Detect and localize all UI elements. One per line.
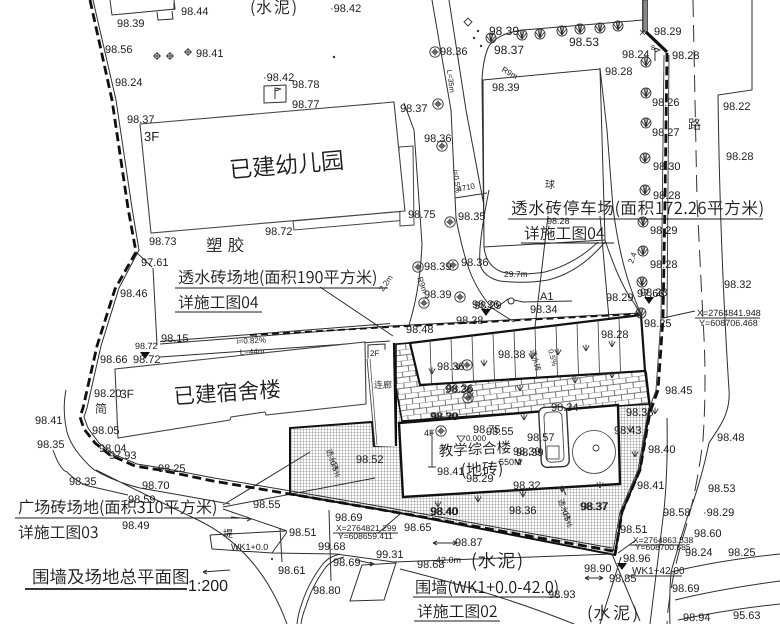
svg-text:98.87: 98.87 <box>455 537 483 549</box>
svg-text:98.39: 98.39 <box>489 24 519 38</box>
svg-text:98.55: 98.55 <box>253 499 281 511</box>
svg-text:98.35: 98.35 <box>626 407 654 419</box>
svg-text:98.75: 98.75 <box>408 209 436 221</box>
svg-text:98.52: 98.52 <box>356 454 384 466</box>
svg-text:98.72: 98.72 <box>265 226 293 238</box>
svg-text:98.25: 98.25 <box>158 463 186 475</box>
svg-text:98.48: 98.48 <box>406 324 434 336</box>
svg-text:98.39: 98.39 <box>513 446 541 458</box>
svg-text:98.36: 98.36 <box>446 383 474 395</box>
svg-text:98.20: 98.20 <box>94 388 122 400</box>
svg-text:98.28: 98.28 <box>672 50 700 62</box>
svg-text:98.36: 98.36 <box>440 46 468 58</box>
svg-text:98.30: 98.30 <box>431 411 459 423</box>
svg-text:98.28: 98.28 <box>650 259 678 271</box>
svg-text:98.53: 98.53 <box>569 35 599 49</box>
svg-text:98.24: 98.24 <box>622 49 650 61</box>
svg-text:98.72: 98.72 <box>133 354 161 366</box>
svg-text:98.36: 98.36 <box>461 257 489 269</box>
svg-text:98.39: 98.39 <box>424 261 452 273</box>
svg-text:98.36: 98.36 <box>509 505 537 517</box>
svg-text:98.32: 98.32 <box>724 279 752 291</box>
svg-text:98.38: 98.38 <box>456 315 484 327</box>
svg-text:98.93: 98.93 <box>548 589 576 601</box>
svg-text:98.34: 98.34 <box>551 402 579 414</box>
svg-text:3F: 3F <box>120 387 134 401</box>
svg-text:98.58: 98.58 <box>663 507 691 519</box>
svg-text:98.66: 98.66 <box>100 354 128 366</box>
svg-text:98.53: 98.53 <box>708 483 736 495</box>
svg-text:98.41: 98.41 <box>637 480 665 492</box>
svg-text:98.37: 98.37 <box>127 114 155 126</box>
svg-text:·98.42: ·98.42 <box>263 72 294 84</box>
svg-text:98.37: 98.37 <box>400 103 428 115</box>
svg-text:98.44: 98.44 <box>181 6 209 18</box>
svg-text:98.94: 98.94 <box>683 612 711 624</box>
svg-text:98.28: 98.28 <box>601 329 629 341</box>
svg-text:98.28: 98.28 <box>547 216 570 226</box>
svg-text:4F: 4F <box>424 428 435 438</box>
svg-text:Y=608706.468: Y=608706.468 <box>699 318 758 328</box>
svg-text:98.29: 98.29 <box>654 26 682 38</box>
svg-text:98.45: 98.45 <box>665 385 693 397</box>
svg-text:29.7m: 29.7m <box>504 269 528 279</box>
svg-text:98.43: 98.43 <box>614 425 642 437</box>
svg-text:98.69: 98.69 <box>333 557 361 569</box>
svg-text:98.38: 98.38 <box>498 349 526 361</box>
svg-text:98.28: 98.28 <box>640 287 668 299</box>
svg-text:2F: 2F <box>370 349 379 358</box>
svg-text:98.24: 98.24 <box>115 77 143 89</box>
svg-text:98.05: 98.05 <box>92 425 120 437</box>
svg-text:98.37: 98.37 <box>494 43 524 57</box>
svg-text:98.60: 98.60 <box>694 528 722 540</box>
svg-text:98.28: 98.28 <box>726 151 754 163</box>
svg-text:98.61: 98.61 <box>278 565 306 577</box>
svg-text:98.25: 98.25 <box>728 547 756 559</box>
svg-text:98.40: 98.40 <box>648 444 676 456</box>
svg-text:98.29: 98.29 <box>650 225 678 237</box>
svg-text:3F: 3F <box>144 129 159 144</box>
svg-text:98.22: 98.22 <box>723 101 751 113</box>
svg-text:98.78: 98.78 <box>292 79 320 91</box>
svg-text:98.37: 98.37 <box>581 501 609 513</box>
svg-text:98.35: 98.35 <box>458 211 486 223</box>
svg-text:98.72: 98.72 <box>135 341 158 351</box>
svg-text:Y=608700.685: Y=608700.685 <box>635 542 691 552</box>
svg-text:98.77: 98.77 <box>292 99 320 111</box>
svg-text:0.000: 0.000 <box>466 434 487 443</box>
svg-text:WK1+42.00: WK1+42.00 <box>632 566 685 577</box>
svg-text:98.15: 98.15 <box>161 333 189 345</box>
svg-text:99.31: 99.31 <box>376 549 404 561</box>
svg-text:98.29: 98.29 <box>466 473 494 485</box>
svg-text:WK1+0.0: WK1+0.0 <box>231 542 268 552</box>
svg-text:8: 8 <box>651 45 655 52</box>
svg-text:98.46: 98.46 <box>120 288 148 300</box>
svg-text:L=44m: L=44m <box>240 347 265 357</box>
svg-text:98.25: 98.25 <box>644 318 672 330</box>
svg-text:A1: A1 <box>540 291 553 303</box>
svg-text:98.49: 98.49 <box>122 520 150 532</box>
svg-text:98.80: 98.80 <box>313 585 341 597</box>
svg-text:X=2764841.948: X=2764841.948 <box>697 308 761 318</box>
svg-text:98.40: 98.40 <box>431 506 459 518</box>
svg-text:98.73: 98.73 <box>149 236 177 248</box>
svg-text:i=0.82%: i=0.82% <box>237 335 267 346</box>
svg-text:98.36: 98.36 <box>437 361 465 373</box>
svg-text:98.35: 98.35 <box>69 476 97 488</box>
svg-text:98.39: 98.39 <box>492 82 520 94</box>
svg-text:99.68: 99.68 <box>318 541 346 553</box>
svg-text:98.70: 98.70 <box>142 480 170 492</box>
svg-text:98.28: 98.28 <box>605 66 633 78</box>
svg-text:98.48: 98.48 <box>717 432 745 444</box>
svg-text:98.41: 98.41 <box>35 415 63 427</box>
svg-text:·98.29: ·98.29 <box>703 507 734 519</box>
svg-text:1:200: 1:200 <box>188 578 228 595</box>
svg-text:98.26: 98.26 <box>652 97 680 109</box>
svg-text:98.69: 98.69 <box>672 583 700 595</box>
svg-text:98.30: 98.30 <box>653 161 681 173</box>
svg-text:42.0m: 42.0m <box>436 555 461 565</box>
svg-text:98.27: 98.27 <box>652 127 680 139</box>
svg-text:Y=608659.411: Y=608659.411 <box>338 531 393 541</box>
svg-text:98.65: 98.65 <box>404 522 432 534</box>
svg-text:98.56: 98.56 <box>105 44 133 56</box>
svg-text:98.36: 98.36 <box>472 299 500 311</box>
svg-text:95.63: 95.63 <box>733 610 761 622</box>
svg-text:98.34: 98.34 <box>530 304 558 316</box>
svg-text:97.93: 97.93 <box>109 450 137 462</box>
svg-text:98.28: 98.28 <box>653 190 681 202</box>
svg-text:98.90: 98.90 <box>584 563 612 575</box>
svg-text:98.36: 98.36 <box>424 133 452 145</box>
svg-text:98.41: 98.41 <box>196 48 224 60</box>
svg-text:98.41: 98.41 <box>437 466 465 478</box>
svg-text:98.29: 98.29 <box>606 292 634 304</box>
svg-text:·98.42: ·98.42 <box>330 3 361 15</box>
svg-text:98.39: 98.39 <box>117 18 145 30</box>
svg-text:98.32: 98.32 <box>513 480 541 492</box>
svg-text:98.57: 98.57 <box>527 432 555 444</box>
svg-text:98.96: 98.96 <box>623 553 651 565</box>
svg-text:98.51: 98.51 <box>289 527 317 539</box>
svg-text:97.61: 97.61 <box>141 257 169 269</box>
svg-text:98.59: 98.59 <box>128 494 156 506</box>
svg-text:98.35: 98.35 <box>37 439 65 451</box>
